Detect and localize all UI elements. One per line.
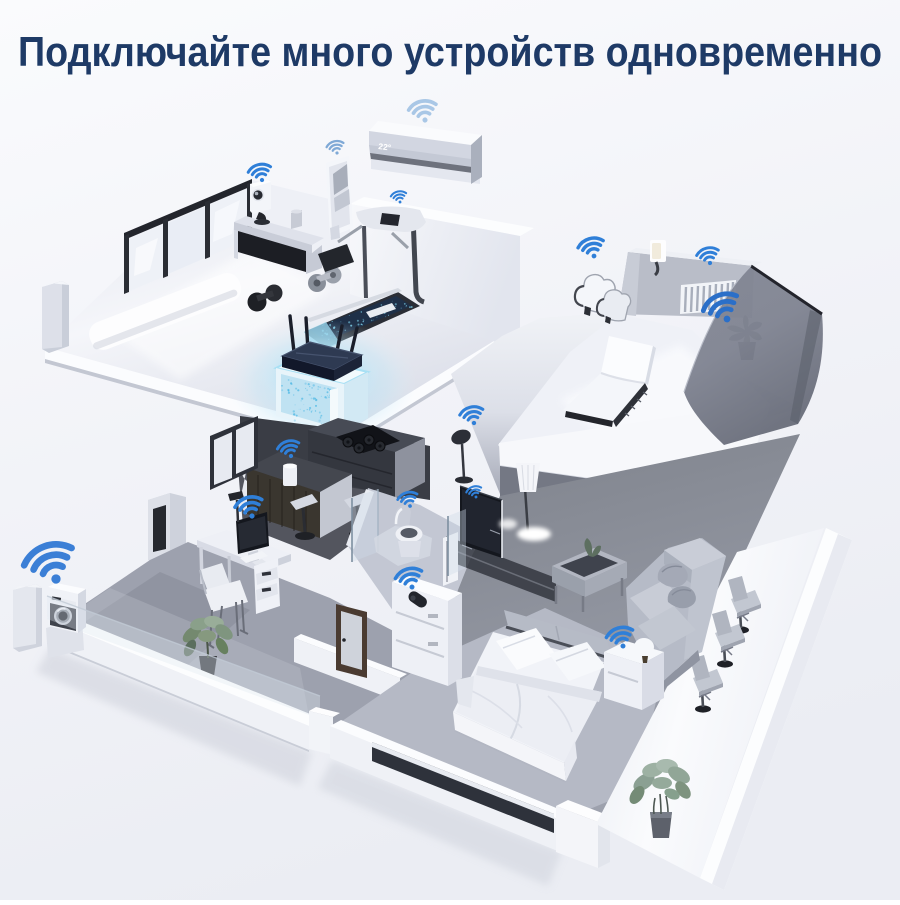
- svg-text:22°: 22°: [378, 141, 393, 153]
- svg-text:Подключайте много устройств од: Подключайте много устройств одновременно: [18, 28, 882, 75]
